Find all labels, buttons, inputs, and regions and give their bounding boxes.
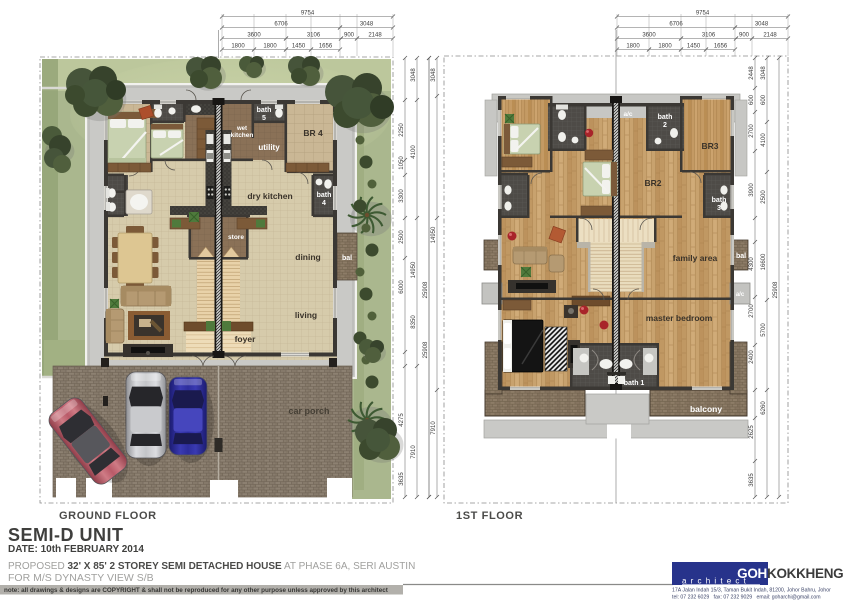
- svg-text:tel: 07 232 6029 fax: 07 232: tel: 07 232 6029 fax: 07 232 9029 email:…: [672, 595, 821, 600]
- svg-text:9754: 9754: [301, 11, 315, 17]
- svg-text:2448: 2448: [749, 66, 755, 80]
- svg-text:3600: 3600: [247, 33, 261, 39]
- svg-text:1800: 1800: [658, 44, 672, 50]
- svg-text:3048: 3048: [755, 22, 769, 28]
- svg-text:FOR M/S DYNASTY VIEW S/B: FOR M/S DYNASTY VIEW S/B: [8, 572, 154, 584]
- svg-text:900: 900: [344, 33, 355, 39]
- svg-text:25908: 25908: [423, 281, 429, 298]
- svg-text:14950: 14950: [431, 226, 437, 243]
- svg-text:3048: 3048: [431, 68, 437, 82]
- svg-text:store: store: [228, 234, 244, 241]
- svg-text:3600: 3600: [642, 33, 656, 39]
- svg-text:bath: bath: [712, 197, 727, 204]
- svg-text:2148: 2148: [368, 33, 382, 39]
- svg-text:25908: 25908: [773, 281, 779, 298]
- svg-text:GROUND FLOOR: GROUND FLOOR: [59, 510, 157, 522]
- svg-text:2500: 2500: [761, 190, 767, 204]
- svg-text:2: 2: [663, 122, 667, 129]
- svg-text:bath: bath: [658, 114, 673, 121]
- svg-text:2500: 2500: [399, 230, 405, 244]
- svg-text:2625: 2625: [749, 425, 755, 439]
- svg-text:master bedroom: master bedroom: [646, 313, 713, 323]
- svg-text:3635: 3635: [399, 472, 405, 486]
- svg-text:utility: utility: [258, 143, 280, 152]
- svg-text:5700: 5700: [761, 323, 767, 337]
- svg-text:4100: 4100: [761, 133, 767, 147]
- svg-text:architect: architect: [682, 577, 750, 586]
- svg-text:9754: 9754: [696, 11, 710, 17]
- svg-text:4300: 4300: [749, 257, 755, 271]
- svg-text:bath 1: bath 1: [624, 380, 645, 387]
- svg-text:3048: 3048: [360, 22, 374, 28]
- svg-text:14950: 14950: [411, 261, 417, 278]
- svg-text:BR 4: BR 4: [303, 128, 323, 138]
- svg-text:1800: 1800: [263, 44, 277, 50]
- svg-text:living: living: [295, 310, 317, 320]
- svg-text:bal: bal: [736, 253, 746, 260]
- svg-text:3048: 3048: [761, 66, 767, 80]
- svg-text:4100: 4100: [411, 145, 417, 159]
- svg-text:25908: 25908: [423, 341, 429, 358]
- svg-text:600: 600: [761, 94, 767, 105]
- svg-text:DATE: 10th FEBRUARY 2014: DATE: 10th FEBRUARY 2014: [8, 544, 144, 555]
- svg-text:900: 900: [739, 33, 750, 39]
- svg-text:1656: 1656: [714, 44, 728, 50]
- svg-text:dining: dining: [295, 252, 321, 262]
- svg-text:1656: 1656: [319, 44, 333, 50]
- svg-text:1800: 1800: [231, 44, 245, 50]
- svg-text:2250: 2250: [399, 123, 405, 137]
- svg-text:KOKKHENG: KOKKHENG: [767, 566, 843, 581]
- svg-text:family area: family area: [673, 253, 718, 263]
- svg-text:7910: 7910: [431, 421, 437, 435]
- svg-text:8350: 8350: [411, 315, 417, 329]
- svg-text:6260: 6260: [761, 401, 767, 415]
- svg-text:17A Jalan Indah 15/3, Taman Bu: 17A Jalan Indah 15/3, Taman Bukit Indah,…: [672, 588, 831, 594]
- svg-text:2700: 2700: [749, 124, 755, 138]
- svg-text:3300: 3300: [399, 189, 405, 203]
- svg-text:1800: 1800: [626, 44, 640, 50]
- svg-text:a/c: a/c: [623, 111, 632, 118]
- svg-text:bath: bath: [317, 192, 332, 199]
- svg-text:6706: 6706: [274, 22, 288, 28]
- svg-text:3048: 3048: [411, 68, 417, 82]
- svg-text:2700: 2700: [749, 304, 755, 318]
- svg-text:3106: 3106: [307, 33, 321, 39]
- svg-text:PROPOSED 32' X 85' 2 STOREY SE: PROPOSED 32' X 85' 2 STOREY SEMI DETACHE…: [8, 561, 415, 572]
- svg-text:4: 4: [322, 200, 326, 207]
- svg-text:3: 3: [717, 205, 721, 212]
- svg-text:3106: 3106: [702, 33, 716, 39]
- svg-text:2400: 2400: [749, 350, 755, 364]
- svg-text:600: 600: [749, 94, 755, 105]
- svg-text:7910: 7910: [411, 445, 417, 459]
- svg-text:BR3: BR3: [701, 141, 718, 151]
- svg-text:16600: 16600: [761, 253, 767, 270]
- svg-text:note: all drawings & designs a: note: all drawings & designs are COPYRIG…: [4, 587, 389, 594]
- svg-text:bath: bath: [257, 107, 272, 114]
- svg-text:car porch: car porch: [288, 406, 329, 416]
- svg-text:1050: 1050: [399, 156, 405, 170]
- svg-text:6000: 6000: [399, 280, 405, 294]
- svg-text:4275: 4275: [399, 413, 405, 427]
- svg-text:kitchen: kitchen: [231, 132, 254, 139]
- svg-text:foyer: foyer: [235, 334, 256, 344]
- svg-text:3635: 3635: [749, 473, 755, 487]
- svg-text:6706: 6706: [669, 22, 683, 28]
- svg-text:a/c: a/c: [736, 292, 745, 298]
- svg-text:dry kitchen: dry kitchen: [247, 191, 292, 201]
- svg-text:2148: 2148: [763, 33, 777, 39]
- svg-text:5: 5: [262, 115, 266, 122]
- svg-text:balcony: balcony: [690, 404, 722, 414]
- svg-text:1450: 1450: [687, 44, 701, 50]
- svg-text:1ST FLOOR: 1ST FLOOR: [456, 510, 523, 522]
- svg-text:3900: 3900: [749, 183, 755, 197]
- svg-text:bal: bal: [342, 255, 352, 262]
- svg-text:SEMI-D UNIT: SEMI-D UNIT: [8, 525, 124, 545]
- svg-text:1450: 1450: [292, 44, 306, 50]
- svg-text:BR2: BR2: [644, 178, 661, 188]
